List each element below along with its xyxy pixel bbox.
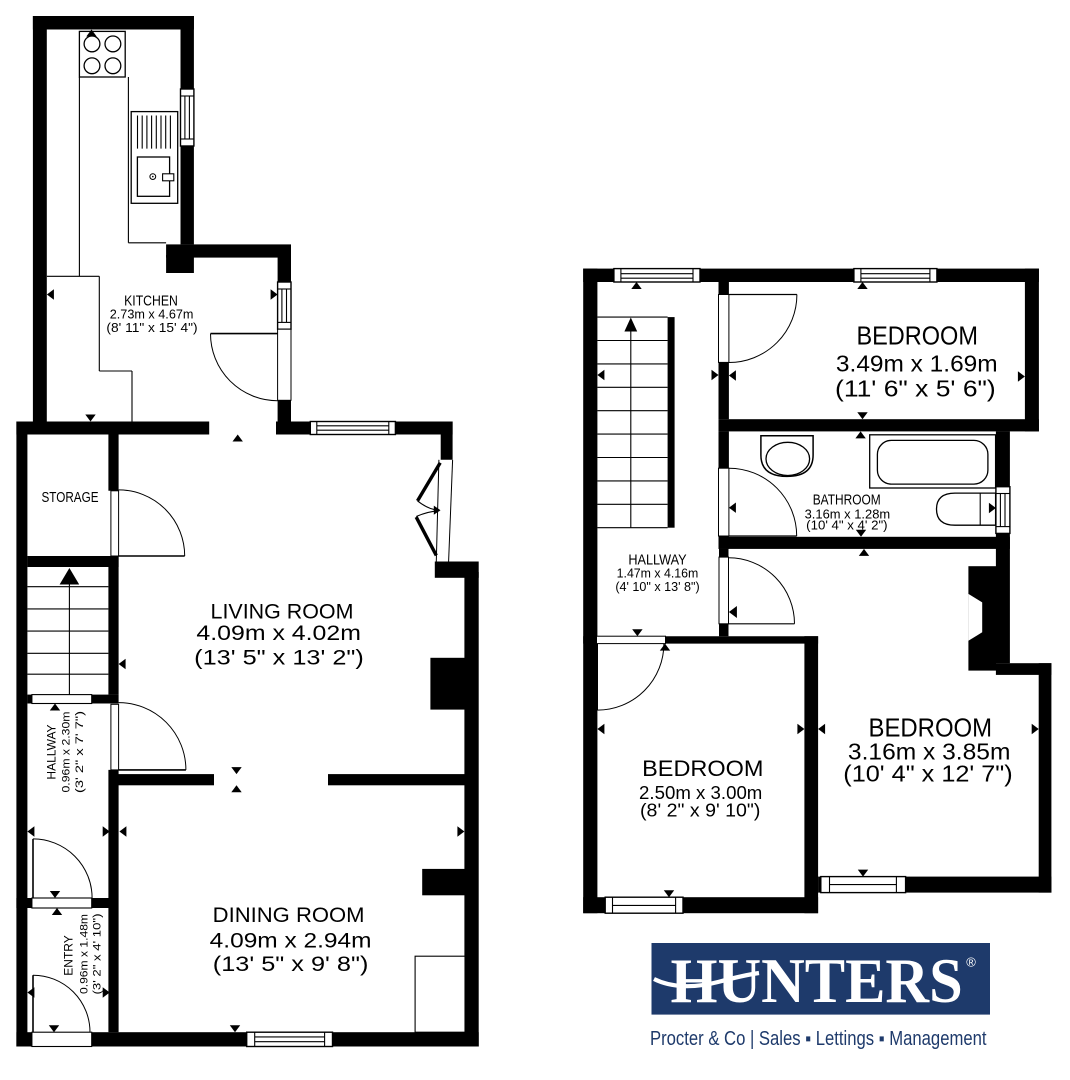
svg-text:STORAGE: STORAGE xyxy=(42,490,99,506)
svg-text:(4' 10" x 13' 8"): (4' 10" x 13' 8") xyxy=(615,579,699,594)
svg-text:(11' 6" x 5' 6"): (11' 6" x 5' 6") xyxy=(835,376,996,402)
svg-text:(13' 5" x 13' 2"): (13' 5" x 13' 2") xyxy=(194,647,364,670)
svg-text:HALLWAY: HALLWAY xyxy=(45,724,59,779)
svg-text:0.96m x 2.30m: 0.96m x 2.30m xyxy=(61,712,73,793)
svg-text:BEDROOM: BEDROOM xyxy=(856,323,978,351)
svg-text:LIVING ROOM: LIVING ROOM xyxy=(211,601,354,624)
svg-text:(3' 2" x 7' 7"): (3' 2" x 7' 7") xyxy=(74,711,86,793)
svg-text:BEDROOM: BEDROOM xyxy=(642,756,763,781)
svg-text:DINING ROOM: DINING ROOM xyxy=(213,904,365,927)
svg-text:(13' 5" x 9' 8"): (13' 5" x 9' 8") xyxy=(213,953,369,976)
svg-text:(8' 2" x 9' 10"): (8' 2" x 9' 10") xyxy=(640,800,760,821)
svg-text:0.96m x 1.48m: 0.96m x 1.48m xyxy=(79,914,91,994)
svg-text:(8' 11" x 15' 4"): (8' 11" x 15' 4") xyxy=(106,320,197,335)
svg-text:®: ® xyxy=(966,955,976,970)
svg-text:Procter & Co | Sales ▪ Letting: Procter & Co | Sales ▪ Lettings ▪ Manage… xyxy=(650,1028,987,1050)
svg-text:(3' 2" x 4' 10"): (3' 2" x 4' 10") xyxy=(92,914,104,995)
svg-text:(10' 4" x 4' 2"): (10' 4" x 4' 2") xyxy=(806,518,887,533)
svg-text:3.49m x 1.69m: 3.49m x 1.69m xyxy=(836,351,998,377)
svg-text:ENTRY: ENTRY xyxy=(62,935,76,975)
svg-text:(10' 4" x 12' 7"): (10' 4" x 12' 7") xyxy=(843,761,1012,787)
svg-text:4.09m x 4.02m: 4.09m x 4.02m xyxy=(196,622,361,645)
svg-text:4.09m x 2.94m: 4.09m x 2.94m xyxy=(210,930,372,953)
